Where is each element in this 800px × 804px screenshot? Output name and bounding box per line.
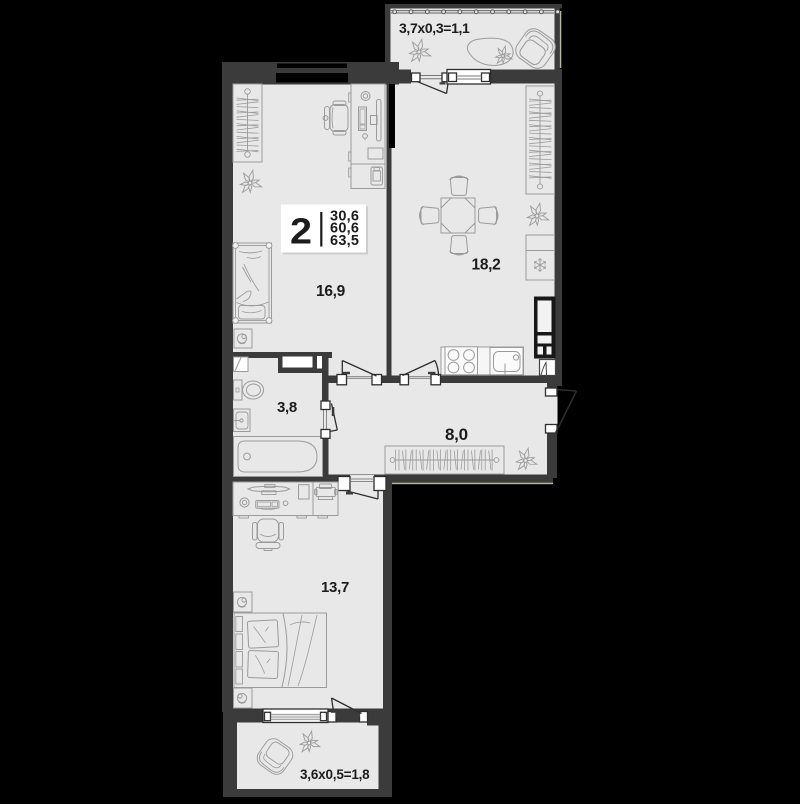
svg-text:3,7x0,3=1,1: 3,7x0,3=1,1 — [399, 20, 470, 36]
svg-text:2: 2 — [290, 211, 312, 252]
svg-text:13,7: 13,7 — [321, 579, 349, 596]
svg-text:18,2: 18,2 — [472, 257, 501, 274]
svg-text:63,5: 63,5 — [330, 233, 359, 249]
svg-text:16,9: 16,9 — [316, 283, 346, 300]
svg-text:3,6x0,5=1,8: 3,6x0,5=1,8 — [300, 767, 370, 782]
svg-text:3,8: 3,8 — [277, 399, 297, 416]
svg-text:8,0: 8,0 — [445, 425, 468, 444]
